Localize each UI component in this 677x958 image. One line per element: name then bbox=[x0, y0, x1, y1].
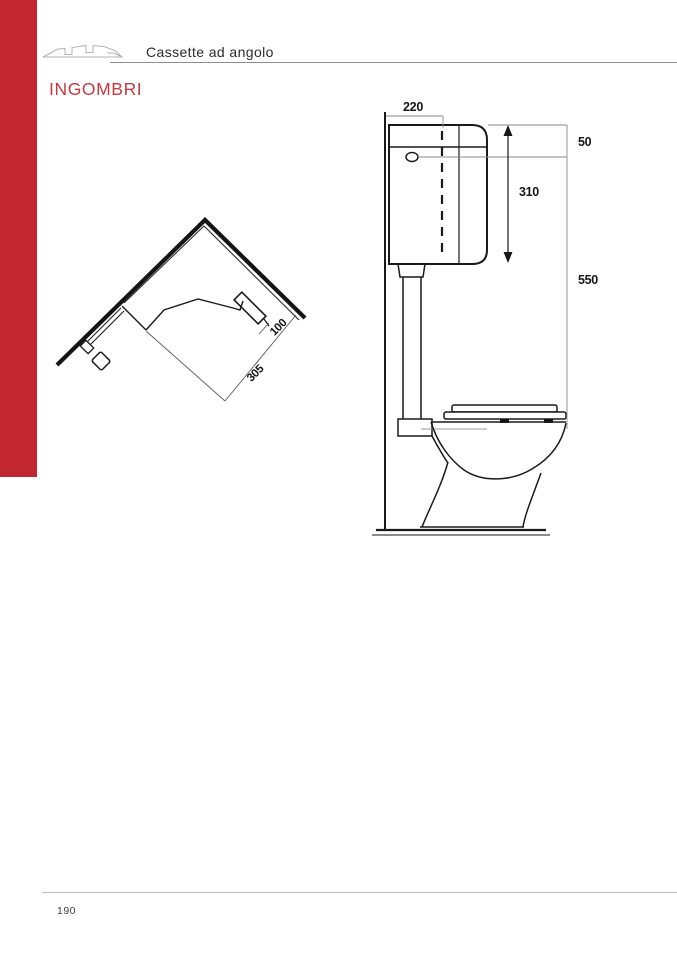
section-title: INGOMBRI bbox=[49, 79, 142, 100]
cistern-outline bbox=[389, 125, 487, 264]
dim-label-220: 220 bbox=[403, 100, 423, 114]
footer-rule bbox=[42, 892, 677, 893]
header-rule bbox=[110, 62, 677, 63]
dim-label-310: 310 bbox=[519, 185, 539, 199]
pedestal-right bbox=[523, 473, 541, 527]
seat-lid bbox=[452, 405, 557, 412]
bowl-outline bbox=[431, 422, 566, 479]
cistern-right-end bbox=[264, 319, 269, 326]
pipe-flange bbox=[398, 264, 425, 277]
arrow-up-icon bbox=[504, 125, 513, 136]
inlet-pipe-line-1 bbox=[87, 308, 121, 342]
brand-logo-outline bbox=[43, 46, 122, 58]
flush-plate-rect bbox=[234, 292, 266, 324]
cistern-front-profile bbox=[146, 299, 243, 330]
corner-walls-outer bbox=[57, 220, 305, 365]
dim-label-305: 305 bbox=[245, 362, 267, 384]
dim-tick bbox=[259, 323, 269, 334]
dim-label-100: 100 bbox=[268, 317, 289, 338]
page-number: 190 bbox=[57, 905, 76, 917]
flush-button bbox=[406, 153, 418, 162]
flush-plate bbox=[234, 292, 266, 324]
dim-label-50: 50 bbox=[578, 135, 592, 149]
plan-view-drawing: 100 305 bbox=[40, 195, 310, 415]
pedestal-left bbox=[422, 462, 448, 527]
pipe-elbow-curve bbox=[432, 436, 448, 463]
cistern-end-cap bbox=[122, 306, 146, 330]
arrow-down-icon bbox=[504, 252, 513, 263]
catalog-page: Cassette ad angolo INGOMBRI 100 305 bbox=[0, 0, 677, 958]
dim-line-diagonal-left bbox=[146, 331, 225, 401]
inlet-valve-knob bbox=[91, 351, 110, 370]
dim-label-550: 550 bbox=[578, 273, 598, 287]
pipe-elbow bbox=[398, 419, 432, 436]
accent-bar bbox=[0, 0, 37, 477]
seat-ring bbox=[444, 412, 566, 419]
header-title: Cassette ad angolo bbox=[146, 44, 274, 60]
side-view-drawing: 220 50 310 550 bbox=[368, 95, 677, 555]
